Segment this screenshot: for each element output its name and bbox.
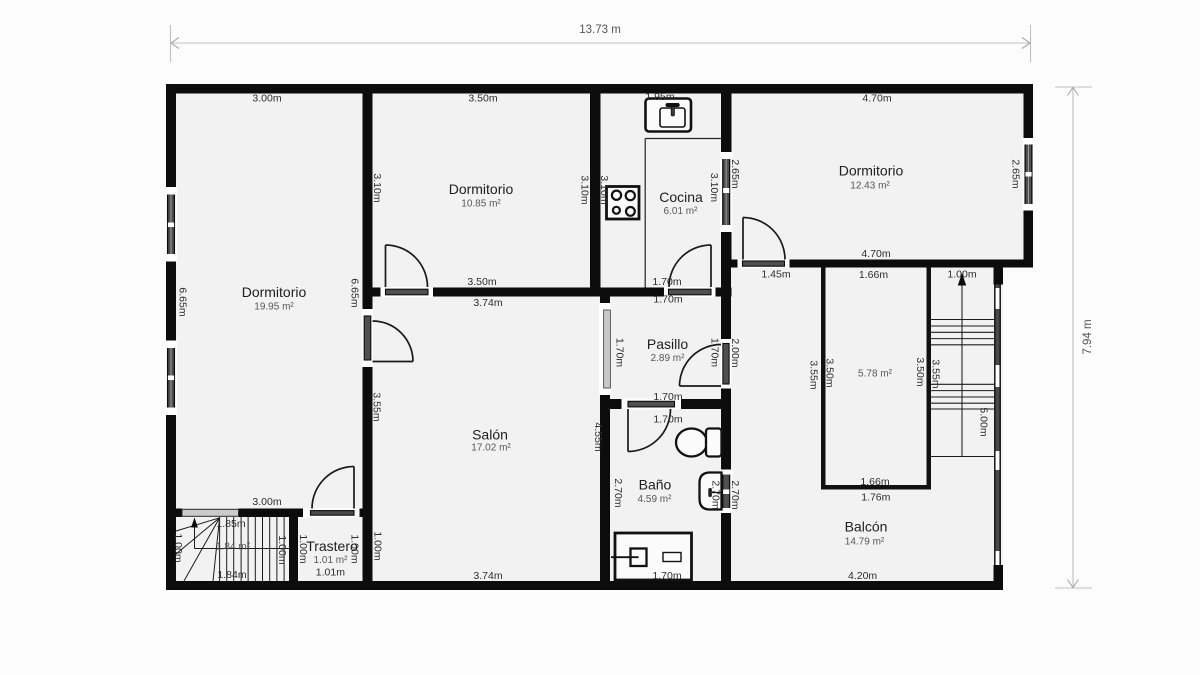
svg-text:2.89 m²: 2.89 m² — [651, 353, 686, 364]
svg-text:1.70m: 1.70m — [653, 391, 682, 403]
svg-text:1.01 m²: 1.01 m² — [314, 555, 349, 566]
svg-text:7.94 m: 7.94 m — [1082, 319, 1094, 354]
svg-text:17.02 m²: 17.02 m² — [471, 443, 511, 454]
svg-text:4.20m: 4.20m — [848, 570, 877, 582]
svg-text:5.00m: 5.00m — [977, 407, 989, 436]
svg-text:1.70m: 1.70m — [653, 294, 682, 306]
svg-text:3.50m: 3.50m — [467, 276, 496, 288]
svg-text:3.50m: 3.50m — [468, 93, 497, 105]
svg-text:1.00m: 1.00m — [172, 533, 184, 562]
svg-text:4.70m: 4.70m — [861, 248, 890, 260]
svg-text:2.65m: 2.65m — [729, 159, 741, 188]
svg-text:3.00m: 3.00m — [252, 93, 281, 105]
svg-text:2.00m: 2.00m — [729, 338, 741, 367]
svg-text:4.59 m²: 4.59 m² — [638, 494, 673, 505]
svg-text:Cocina: Cocina — [659, 189, 703, 205]
svg-text:3.50m: 3.50m — [823, 358, 835, 387]
svg-text:1.66m: 1.66m — [859, 269, 888, 281]
svg-text:2.70m: 2.70m — [709, 480, 721, 509]
svg-text:1.00m: 1.00m — [947, 268, 976, 280]
svg-text:1.00m: 1.00m — [276, 535, 288, 564]
svg-text:Balcón: Balcón — [845, 519, 888, 535]
svg-text:4.55m: 4.55m — [592, 422, 604, 451]
svg-text:1.70m: 1.70m — [708, 338, 720, 367]
svg-text:1.85m: 1.85m — [216, 518, 245, 530]
svg-text:4.70m: 4.70m — [862, 93, 891, 105]
svg-text:1.00m: 1.00m — [297, 534, 309, 563]
svg-text:1.84 m²: 1.84 m² — [216, 542, 251, 553]
svg-text:1.70m: 1.70m — [653, 414, 682, 426]
svg-text:3.10m: 3.10m — [598, 175, 610, 204]
svg-text:13.73 m: 13.73 m — [579, 24, 621, 36]
svg-text:1.01m: 1.01m — [316, 567, 345, 579]
svg-text:1.84m: 1.84m — [217, 569, 246, 581]
svg-text:1.70m: 1.70m — [652, 570, 681, 582]
svg-text:3.55m: 3.55m — [807, 360, 819, 389]
svg-text:1.70m: 1.70m — [613, 338, 625, 367]
svg-text:3.10m: 3.10m — [578, 175, 590, 204]
svg-text:3.00m: 3.00m — [252, 496, 281, 508]
svg-text:Dormitorio: Dormitorio — [839, 163, 904, 179]
svg-text:Baño: Baño — [639, 477, 672, 493]
svg-text:1.70m: 1.70m — [652, 276, 681, 288]
svg-text:1.45m: 1.45m — [761, 269, 790, 281]
svg-text:19.95 m²: 19.95 m² — [254, 302, 294, 313]
svg-text:Salón: Salón — [472, 427, 508, 443]
svg-text:6.65m: 6.65m — [176, 287, 188, 316]
svg-text:10.85 m²: 10.85 m² — [461, 199, 501, 210]
svg-text:12.43 m²: 12.43 m² — [850, 181, 890, 192]
svg-text:3.74m: 3.74m — [473, 570, 502, 582]
svg-text:1.95m: 1.95m — [645, 91, 674, 103]
svg-text:3.10m: 3.10m — [708, 173, 720, 202]
svg-text:6.65m: 6.65m — [348, 278, 360, 307]
svg-text:2.70m: 2.70m — [729, 480, 741, 509]
svg-text:1.00m: 1.00m — [348, 534, 360, 563]
svg-text:5.78 m²: 5.78 m² — [858, 369, 893, 380]
svg-text:Pasillo: Pasillo — [647, 336, 688, 352]
svg-text:3.74m: 3.74m — [473, 297, 502, 309]
svg-text:2.70m: 2.70m — [612, 478, 624, 507]
svg-text:Dormitorio: Dormitorio — [449, 181, 514, 197]
svg-text:1.76m: 1.76m — [861, 492, 890, 504]
svg-text:Dormitorio: Dormitorio — [242, 284, 307, 300]
svg-text:2.65m: 2.65m — [1009, 159, 1021, 188]
svg-text:3.50m: 3.50m — [914, 357, 926, 386]
svg-text:1.66m: 1.66m — [860, 476, 889, 488]
svg-text:14.79 m²: 14.79 m² — [845, 537, 885, 548]
svg-text:3.55m: 3.55m — [929, 359, 941, 388]
svg-text:3.55m: 3.55m — [370, 392, 382, 421]
svg-text:3.10m: 3.10m — [371, 173, 383, 202]
svg-text:6.01 m²: 6.01 m² — [664, 206, 699, 217]
svg-text:1.00m: 1.00m — [371, 531, 383, 560]
